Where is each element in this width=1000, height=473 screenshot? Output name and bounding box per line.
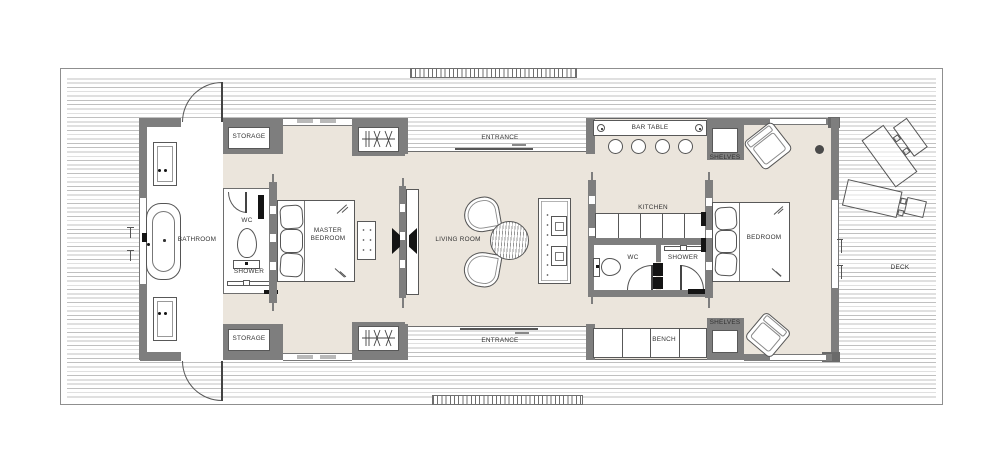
sofa (538, 198, 571, 284)
dimension-tick (130, 227, 131, 238)
counter-divider (640, 214, 641, 238)
rail-end (591, 172, 593, 180)
floor-plan-canvas: STORAGE ENTRANCE BAR TABLE SHELVES (0, 0, 1000, 473)
sofa-back (542, 207, 549, 276)
sliding-door-bottom (460, 328, 538, 330)
clothes-hangers-icon (359, 128, 398, 151)
storage-bottom-label: STORAGE (228, 335, 270, 343)
panel-handle-icon (701, 238, 706, 252)
counter-divider (684, 214, 685, 238)
door-opening-bottom (181, 352, 223, 361)
dimension-tick (130, 250, 131, 261)
wc-guest-label: WC (620, 254, 646, 262)
dimension-tick (841, 240, 842, 253)
dimension-tick (837, 265, 843, 266)
nightstand (357, 221, 376, 260)
bar-stool (631, 139, 646, 154)
counter-divider (618, 214, 619, 238)
entrance-bottom-wall-stub (399, 324, 408, 360)
counter-divider (662, 214, 663, 238)
shower-threshold-guest (688, 289, 706, 294)
window-bottom-1 (283, 353, 352, 361)
bar-table-label: BAR TABLE (615, 124, 685, 132)
window-top-2 (770, 118, 826, 125)
pillow (714, 206, 738, 230)
bath-faucet-icon (147, 243, 150, 246)
sliding-panel-guest (653, 277, 663, 289)
sliding-door-top (455, 148, 533, 150)
wc-master-label: WC (233, 217, 261, 225)
window-sill (297, 119, 313, 123)
pillow (279, 204, 304, 230)
sofa-cushion (551, 216, 567, 236)
sliding-panel-master (258, 195, 264, 219)
pillow (280, 229, 303, 253)
sliding-panel-guest (653, 263, 663, 276)
drain-icon (163, 239, 166, 242)
pillow (279, 252, 304, 278)
table-leg-icon (695, 124, 703, 132)
window-top-1 (283, 118, 352, 126)
area-rug (490, 221, 529, 260)
rail-end (708, 298, 710, 308)
bench-divider (622, 329, 623, 357)
entrance-bottom-label: ENTRANCE (470, 337, 530, 345)
bar-stool (608, 139, 623, 154)
bar-stool (655, 139, 670, 154)
faucet-icon (158, 312, 161, 315)
clothes-hangers-icon (359, 327, 398, 350)
bed-sheet-line (739, 203, 740, 281)
faucet-icon (164, 169, 167, 172)
bathroom-label: BATHROOM (168, 236, 226, 244)
wc-door-leaf-master (245, 192, 247, 213)
shower-handle-guest (680, 245, 687, 251)
deck-label: DECK (876, 264, 924, 272)
shower-guest-label: SHOWER (659, 254, 707, 262)
bath-faucet-icon (142, 233, 147, 242)
partition-rail-1 (399, 186, 406, 298)
dimension-tick (127, 227, 134, 228)
dimension-tick (841, 266, 842, 279)
sliding-door-top-leaf (512, 144, 526, 146)
shower-guest-door-leaf (680, 265, 682, 290)
flush-button-icon (245, 262, 248, 265)
dimension-tick (837, 239, 843, 240)
door-leaf-top (221, 82, 223, 122)
shelves-bottom-box (712, 330, 738, 353)
toilet-master (237, 228, 257, 258)
window-sill (320, 355, 336, 359)
bedroom-label: BEDROOM (740, 234, 788, 242)
window-bottom-2 (770, 354, 826, 361)
rail-end (272, 303, 274, 311)
pillow (715, 230, 737, 253)
table-leg-icon (597, 124, 605, 132)
shelves-top-label: SHELVES (703, 154, 747, 162)
dimension-tick (127, 250, 134, 251)
storage-top-label: STORAGE (228, 133, 270, 141)
wardrobe-top-box (358, 127, 399, 152)
living-room-label: LIVING ROOM (430, 236, 486, 244)
faucet-icon (164, 312, 167, 315)
bar-stool (678, 139, 693, 154)
rail-end (402, 178, 404, 186)
master-bedroom-label: MASTER BEDROOM (304, 227, 352, 243)
window-sill (320, 119, 336, 123)
gangway-bottom (432, 395, 583, 405)
shower-handle-master (243, 280, 250, 286)
kitchen-counter (595, 213, 707, 239)
wardrobe-bottom-box (358, 326, 399, 351)
door-leaf-bottom (221, 361, 223, 401)
panel-handle-icon (701, 212, 706, 226)
sofa-cushion (551, 246, 567, 266)
wall-left-upper (139, 118, 147, 198)
vanity-sink-top (153, 142, 177, 186)
wall-right-lower (831, 288, 839, 358)
entrance-top-label: ENTRANCE (470, 134, 530, 142)
vanity-sink-bottom (153, 297, 177, 341)
bench-label: BENCH (640, 336, 688, 344)
partition-rail-master (269, 182, 277, 303)
rail-end (708, 172, 710, 180)
shower-master-label: SHOWER (225, 268, 273, 276)
kitchen-label: KITCHEN (627, 204, 679, 212)
sliding-door-bottom-leaf (515, 332, 529, 334)
gangway-top (410, 68, 577, 78)
wc-guest-wall-top (588, 238, 710, 245)
shelves-top-box (712, 128, 738, 153)
wall-right-upper (831, 118, 839, 200)
rail-end (272, 174, 274, 182)
structural-column (815, 145, 824, 154)
faucet-icon (158, 169, 161, 172)
rail-end (402, 298, 404, 308)
pillow (714, 252, 738, 276)
entrance-top-wall-stub (399, 118, 408, 154)
window-sill (297, 355, 313, 359)
flush-button-icon (596, 265, 599, 268)
wc-guest-door-leaf (651, 265, 653, 290)
wall-left-lower (139, 284, 147, 360)
shelves-bottom-label: SHELVES (703, 319, 747, 327)
